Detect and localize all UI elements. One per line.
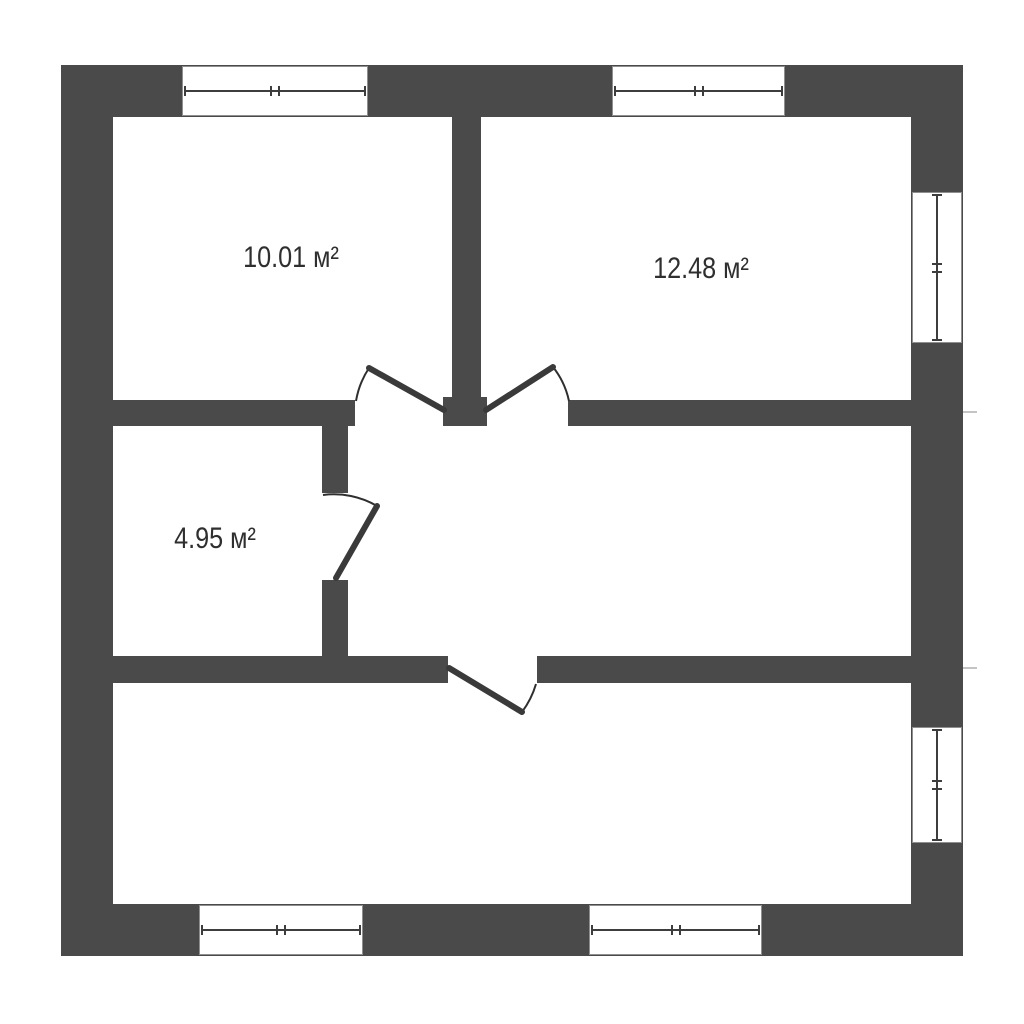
- door-leaf-small-room: [336, 506, 377, 578]
- wall-interior-upper-right: [568, 400, 911, 426]
- window-pane: [936, 730, 938, 840]
- room-area-text: 12.48 м²: [653, 252, 749, 286]
- dimension-tick: [963, 411, 977, 413]
- wall-stub-small-room-lower: [322, 580, 348, 656]
- door-arc-bottom-room: [522, 684, 536, 712]
- window-tick: [276, 925, 278, 935]
- door-leaf-bottom-room: [449, 668, 522, 712]
- floor-plan: 10.01 м² 12.48 м² 4.95 м²: [0, 0, 1024, 1024]
- window-top-left: [182, 66, 368, 116]
- room-label-top-left: 10.01 м²: [234, 241, 348, 275]
- wall-interior-lower-left: [113, 656, 448, 683]
- dimension-tick: [963, 667, 977, 669]
- window-tick: [278, 86, 280, 96]
- window-tick: [671, 925, 673, 935]
- door-arc-top-left: [356, 368, 369, 401]
- window-tick: [201, 925, 203, 935]
- wall-divider-top-rooms: [452, 117, 481, 400]
- window-tick: [359, 925, 361, 935]
- window-right-upper: [912, 192, 962, 343]
- window-tick: [758, 925, 760, 935]
- room-area-text: 10.01 м²: [243, 241, 339, 275]
- window-tick: [591, 925, 593, 935]
- wall-interior-lower-right: [537, 656, 911, 683]
- wall-divider-base: [443, 397, 487, 426]
- wall-outer-left: [61, 65, 113, 956]
- window-tick: [702, 86, 704, 96]
- window-right-lower: [912, 727, 962, 843]
- window-tick: [932, 788, 942, 790]
- wall-interior-upper-left: [113, 400, 355, 426]
- door-arc-small-room: [323, 494, 377, 506]
- window-tick: [932, 263, 942, 265]
- window-pane: [936, 195, 938, 340]
- door-swings: [0, 0, 1024, 1024]
- window-tick: [932, 339, 942, 341]
- window-tick: [932, 839, 942, 841]
- window-tick: [614, 86, 616, 96]
- wall-outer-bottom: [61, 904, 963, 956]
- room-label-middle-left: 4.95 м²: [166, 522, 263, 556]
- window-bottom-right: [589, 905, 762, 955]
- wall-stub-small-room-upper: [322, 426, 348, 493]
- window-tick: [932, 729, 942, 731]
- window-tick: [184, 86, 186, 96]
- door-leaf-top-right: [486, 367, 553, 410]
- window-pane: [615, 90, 782, 92]
- window-top-right: [612, 66, 785, 116]
- window-tick: [932, 194, 942, 196]
- door-arc-top-right: [553, 367, 569, 401]
- window-bottom-left: [199, 905, 363, 955]
- window-pane: [185, 90, 365, 92]
- window-tick: [679, 925, 681, 935]
- window-tick: [694, 86, 696, 96]
- window-pane: [592, 929, 759, 931]
- window-tick: [284, 925, 286, 935]
- window-tick: [932, 780, 942, 782]
- window-pane: [202, 929, 360, 931]
- window-tick: [781, 86, 783, 96]
- window-tick: [270, 86, 272, 96]
- room-area-text: 4.95 м²: [174, 522, 256, 556]
- room-label-top-right: 12.48 м²: [644, 252, 758, 286]
- door-leaf-top-left: [369, 368, 444, 410]
- window-tick: [932, 271, 942, 273]
- window-tick: [364, 86, 366, 96]
